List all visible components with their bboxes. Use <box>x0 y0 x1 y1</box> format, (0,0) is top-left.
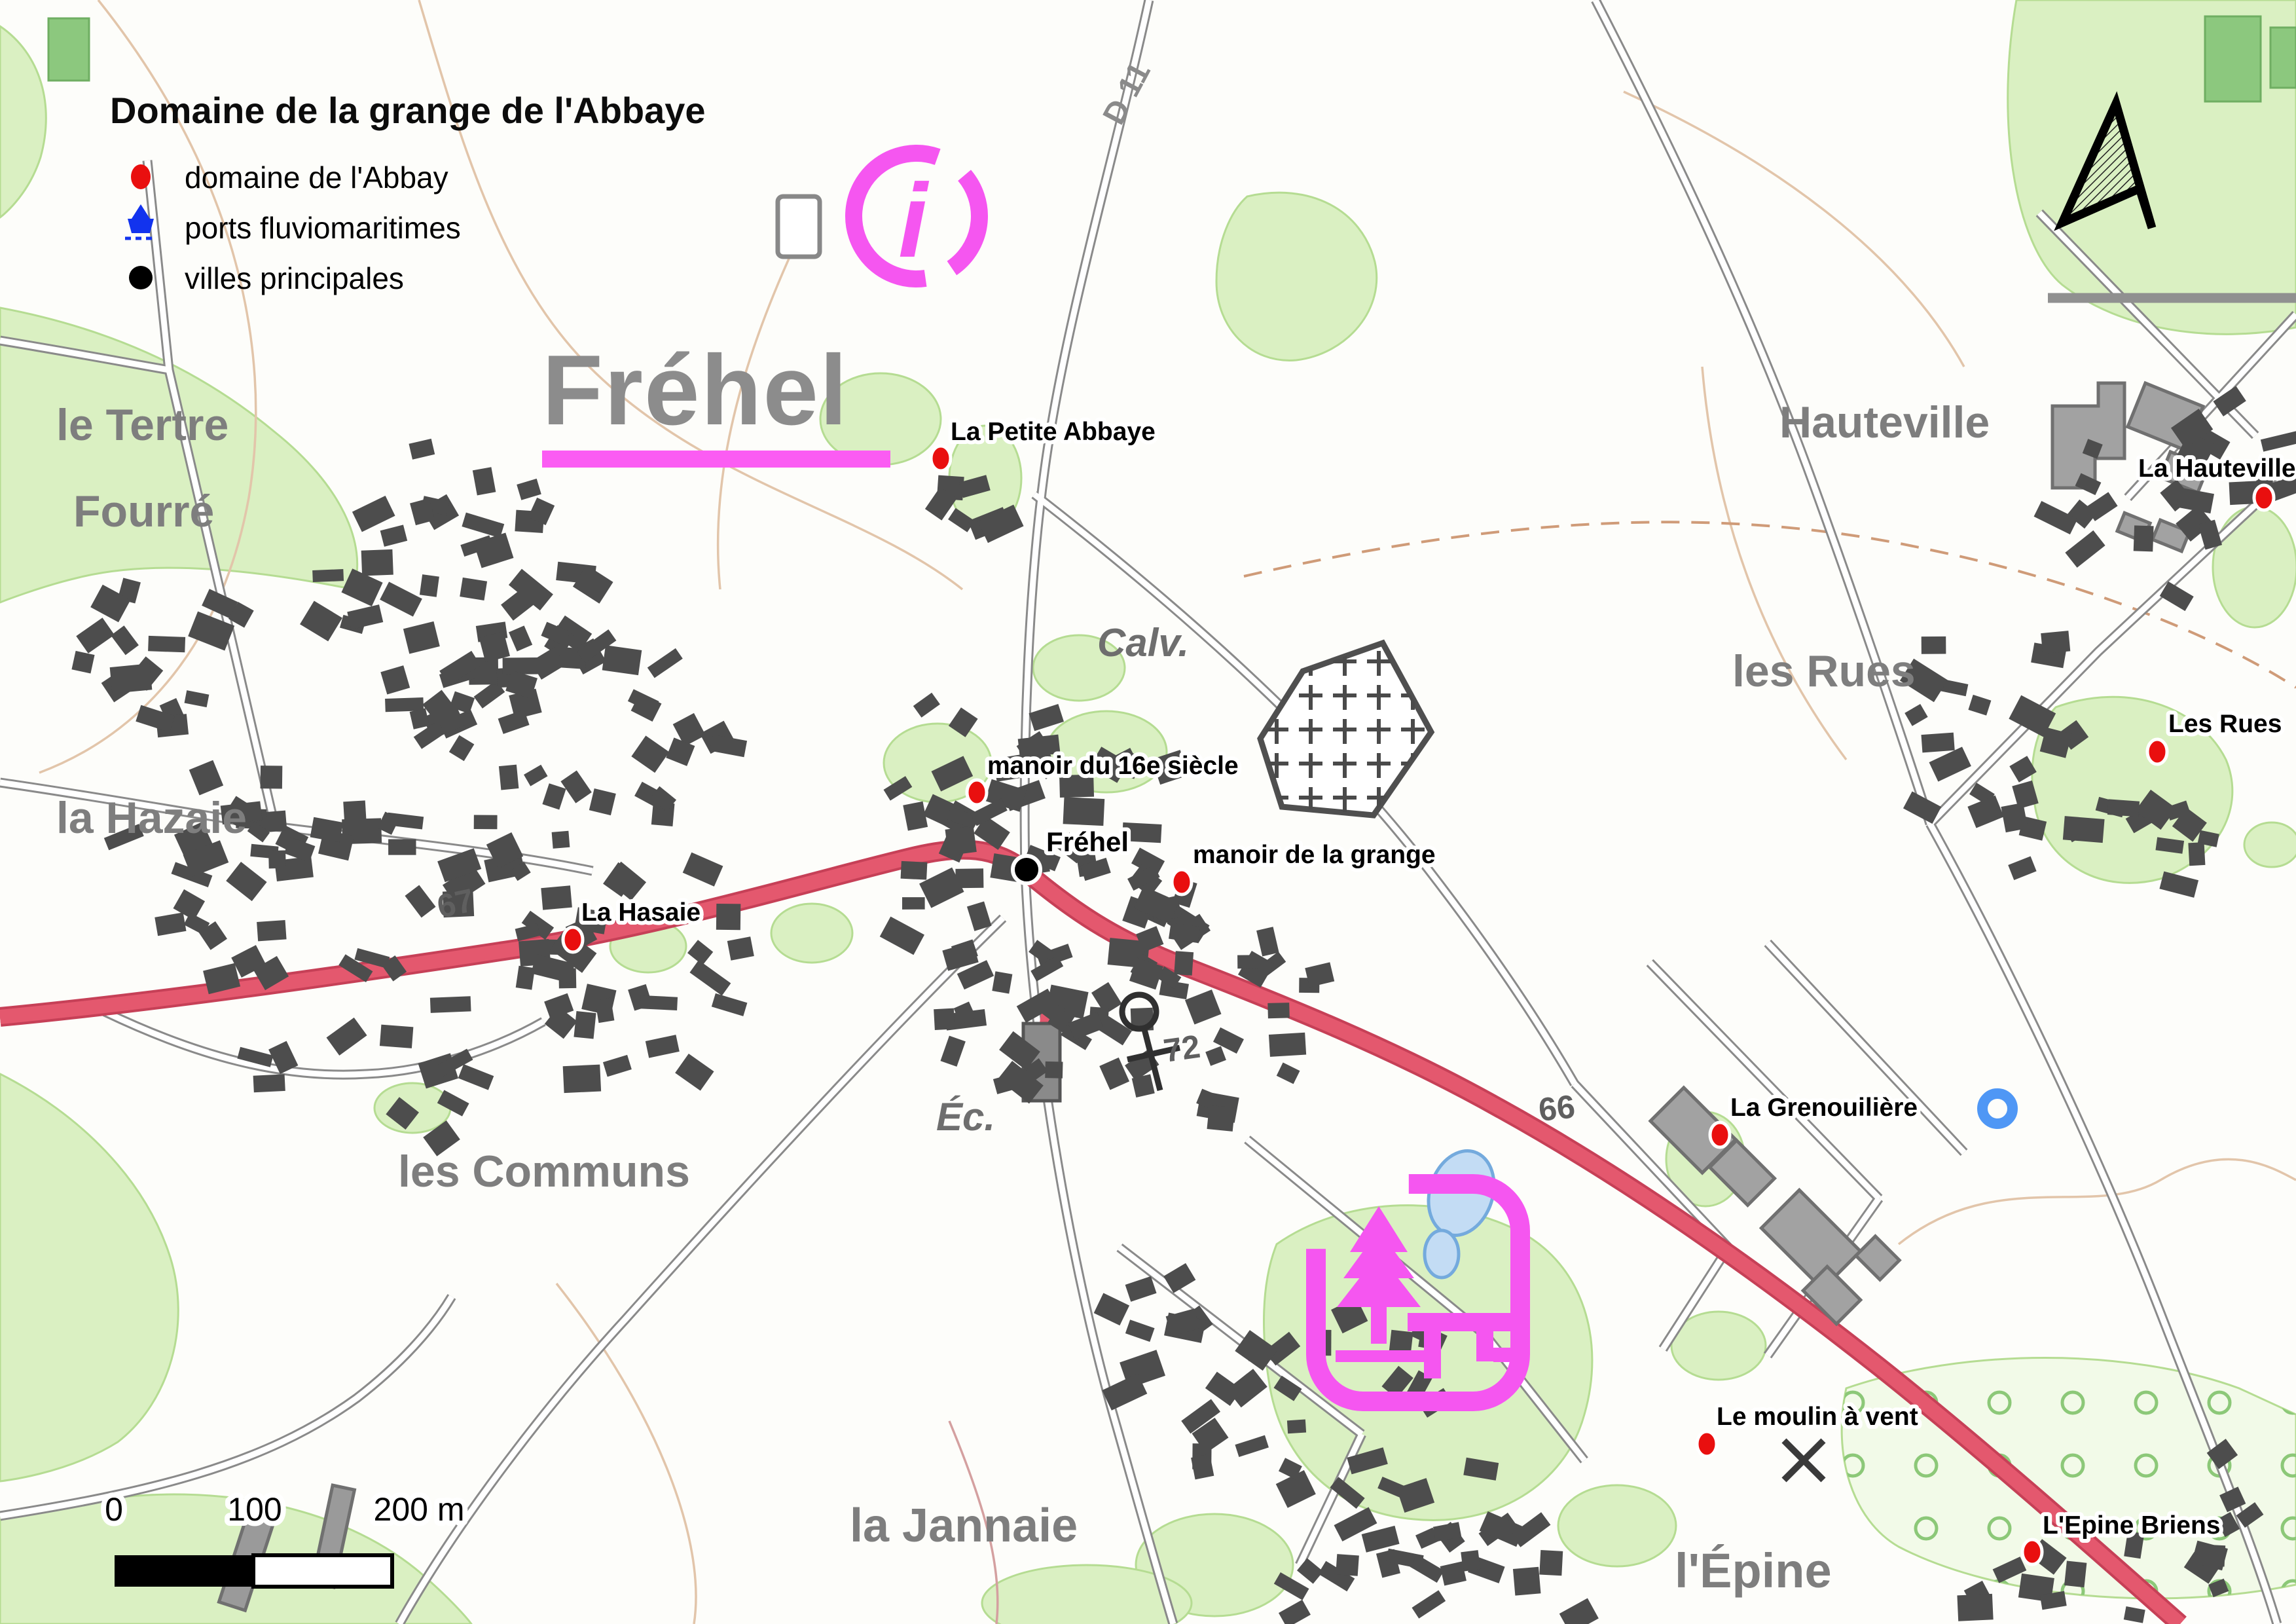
building <box>352 496 395 532</box>
building <box>409 439 435 460</box>
building <box>300 600 342 641</box>
building <box>473 467 496 495</box>
windmill-symbol <box>1784 1441 1823 1480</box>
building <box>902 897 925 910</box>
elevation-67: 67 <box>434 881 477 925</box>
building <box>284 837 315 862</box>
place-ec: Éc. <box>936 1095 995 1139</box>
building <box>603 1055 632 1077</box>
building <box>499 765 519 790</box>
building <box>1279 1600 1311 1624</box>
building <box>2064 1561 2086 1588</box>
building <box>257 920 286 941</box>
road-sign-box <box>778 196 820 257</box>
elevation-66: 66 <box>1537 1088 1576 1128</box>
building <box>71 651 94 674</box>
building <box>992 971 1012 993</box>
poi-dot-la-grenouiliere <box>1710 1122 1730 1147</box>
road-label-d11: D 11 <box>1097 57 1157 130</box>
building <box>388 839 416 855</box>
poi-label-manoir-16e: manoir du 16e siècle <box>987 752 1239 780</box>
poi-dot-manoir-16e <box>967 780 987 805</box>
building <box>1125 1319 1155 1342</box>
building <box>1094 1293 1129 1326</box>
scalebar-100: 100 <box>227 1491 282 1528</box>
building <box>1277 1063 1300 1084</box>
vegetation-dark-blocks <box>48 16 2296 101</box>
building <box>261 766 283 788</box>
building <box>380 1025 413 1048</box>
building <box>524 765 547 786</box>
building <box>2063 816 2105 843</box>
poi-label-manoir-grange: manoir de la grange <box>1193 841 1436 869</box>
poi-label-l-epine-briens: L'Epine Briens <box>2043 1511 2221 1540</box>
frehel-title: Fréhel <box>542 335 848 446</box>
building <box>1045 1061 1063 1079</box>
building <box>640 995 678 1010</box>
legend-label-domaine: domaine de l'Abbay <box>185 160 448 194</box>
building <box>347 604 383 629</box>
building <box>631 735 669 773</box>
building <box>1539 1550 1563 1576</box>
building <box>1929 747 1971 781</box>
building <box>2107 799 2140 817</box>
tourist-info-icon: i <box>828 128 1005 304</box>
building <box>380 581 422 616</box>
building <box>1412 1590 1446 1618</box>
poi-dot-le-moulin <box>1697 1431 1717 1456</box>
map-canvas: i le Tertre Fourré la Hazaie les Communs… <box>0 0 2296 1624</box>
poi-label-le-moulin: Le moulin à vent <box>1717 1403 1918 1431</box>
building <box>542 783 566 809</box>
place-fourre: Fourré <box>73 487 214 536</box>
building <box>155 912 186 936</box>
building <box>405 885 435 917</box>
building <box>541 885 572 910</box>
building <box>647 648 683 678</box>
building <box>712 993 748 1016</box>
building <box>1287 1420 1306 1434</box>
building <box>473 532 513 568</box>
poi-label-la-petite-abbaye: La Petite Abbaye <box>951 418 1156 446</box>
building <box>903 802 928 831</box>
building <box>148 636 185 652</box>
poi-label-les-rues: Les Rues <box>2168 710 2282 738</box>
poi-dot-manoir-grange <box>1172 870 1192 895</box>
building <box>901 861 928 880</box>
building <box>552 831 570 849</box>
poi-dot-la-petite-abbaye <box>931 446 951 471</box>
building <box>560 770 591 803</box>
city-dot-frehel <box>1013 856 1040 883</box>
building <box>516 966 535 990</box>
map-svg: i le Tertre Fourré la Hazaie les Communs… <box>0 0 2296 1624</box>
building <box>1968 695 1991 716</box>
building <box>498 710 530 734</box>
building <box>111 625 139 655</box>
building <box>1461 1550 1480 1572</box>
poi-dot-la-hasaie <box>563 927 583 952</box>
building <box>1362 1526 1400 1553</box>
place-hauteville: Hauteville <box>1779 397 1990 447</box>
building <box>110 663 153 693</box>
building <box>460 578 487 600</box>
scalebar-200: 200 m <box>374 1491 465 1528</box>
building <box>420 574 439 597</box>
building <box>2159 872 2198 898</box>
poi-dot-l-epine-briens <box>2022 1540 2042 1564</box>
building <box>1336 1554 1359 1576</box>
building <box>458 1064 494 1090</box>
building <box>310 817 343 843</box>
legend-black-dot-icon <box>129 266 153 289</box>
building <box>509 625 532 651</box>
scalebar-black-segment <box>115 1555 253 1587</box>
scalebar-white-segment <box>253 1555 392 1587</box>
building <box>940 1036 965 1067</box>
city-dot-label: Fréhel <box>1046 826 1129 857</box>
building <box>327 1018 367 1056</box>
poi-dot-la-hauteville <box>2254 485 2274 510</box>
map-title: Domaine de la grange de l'Abbaye <box>110 90 706 131</box>
place-l-epine: l'Épine <box>1675 1543 1832 1598</box>
poi-label-la-hauteville: La Hauteville <box>2138 454 2296 483</box>
building <box>1957 1594 1993 1621</box>
building <box>1269 1033 1306 1057</box>
building <box>1207 1105 1235 1132</box>
building <box>1205 1046 1226 1066</box>
building <box>1174 951 1194 975</box>
poi-label-la-grenouiliere: La Grenouilière <box>1730 1094 1918 1122</box>
legend: Domaine de la grange de l'Abbaye domaine… <box>110 90 706 295</box>
building <box>646 1035 680 1058</box>
cemetery <box>1260 643 1431 815</box>
scalebar-0: 0 <box>105 1491 123 1528</box>
building <box>474 815 498 829</box>
building <box>410 708 429 729</box>
building <box>934 1008 955 1030</box>
svg-text:i: i <box>898 162 930 279</box>
building <box>380 525 408 546</box>
place-la-hazaie: la Hazaie <box>56 793 247 843</box>
frehel-underline <box>542 451 890 468</box>
building <box>2041 631 2070 654</box>
building <box>1256 927 1279 956</box>
building <box>1410 1555 1444 1583</box>
place-la-jannaie: la Jannaie <box>850 1500 1078 1552</box>
place-calv: Calv. <box>1097 621 1189 665</box>
building <box>1967 796 2003 828</box>
building <box>2124 1606 2145 1623</box>
building <box>589 788 616 815</box>
building <box>76 618 115 653</box>
building <box>1099 1058 1129 1090</box>
building <box>361 549 393 576</box>
building <box>913 693 940 718</box>
building <box>253 1074 285 1092</box>
building <box>563 1065 601 1094</box>
place-les-rues: les Rues <box>1732 646 1916 696</box>
building <box>689 960 731 995</box>
place-les-communs: les Communs <box>398 1147 690 1196</box>
building <box>1185 989 1222 1024</box>
building <box>2134 525 2154 551</box>
poi-dot-les-rues <box>2147 739 2167 764</box>
building <box>2065 530 2105 568</box>
building <box>312 569 344 582</box>
building <box>1235 1435 1269 1457</box>
building <box>1237 955 1258 969</box>
building <box>1904 704 1927 726</box>
building <box>1513 1567 1541 1596</box>
building <box>1305 962 1334 987</box>
building <box>880 917 924 955</box>
building <box>716 904 740 930</box>
building <box>574 1011 596 1039</box>
building <box>1559 1598 1599 1624</box>
building <box>683 853 723 887</box>
building <box>1267 1003 1289 1018</box>
legend-label-ports: ports fluviomaritimes <box>185 211 461 245</box>
building <box>1921 733 1954 753</box>
legend-label-villes: villes principales <box>185 261 404 295</box>
building <box>2202 1544 2225 1566</box>
building <box>385 697 424 712</box>
building <box>967 901 992 931</box>
building <box>727 936 754 961</box>
building <box>403 621 440 654</box>
building <box>462 513 504 538</box>
building <box>517 479 541 500</box>
building <box>1440 1561 1467 1585</box>
place-le-tertre: le Tertre <box>56 400 228 450</box>
building <box>1125 1276 1157 1302</box>
building <box>2008 856 2036 880</box>
building <box>268 850 286 868</box>
building <box>710 735 747 758</box>
building <box>226 862 266 901</box>
building <box>602 645 642 675</box>
pond-icon <box>1982 1094 2013 1124</box>
building <box>1132 1074 1155 1098</box>
building <box>945 826 977 855</box>
building <box>2198 520 2222 550</box>
building <box>449 735 475 762</box>
poi-label-la-hasaie: La Hasaie <box>581 898 701 927</box>
building <box>185 690 210 707</box>
building <box>1922 637 1946 654</box>
building <box>1063 797 1105 826</box>
building <box>675 1054 714 1091</box>
elevation-72: 72 <box>1161 1028 1203 1069</box>
building <box>2034 501 2078 534</box>
building <box>2188 842 2205 866</box>
building <box>430 996 471 1013</box>
building <box>189 760 223 796</box>
building <box>2176 487 2214 513</box>
building <box>380 665 410 694</box>
legend-red-dot-icon <box>131 164 151 189</box>
building <box>2261 430 2296 452</box>
